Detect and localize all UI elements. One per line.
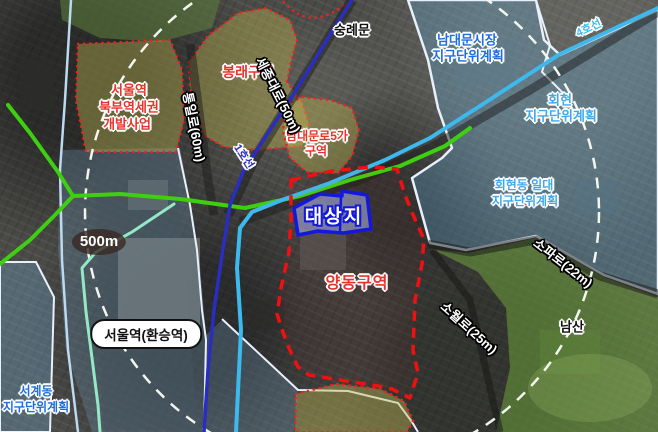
map-canvas: 서울역 북부역세권 개발사업 봉래구역 남대문로5가 구역 양동구역 대상지 남…	[0, 0, 658, 432]
zone-label-hoehyeon-2: 지구단위계획	[525, 110, 597, 123]
park-area-top	[60, 0, 220, 42]
zone-label-seogyedong-2: 지구단위계획	[3, 401, 69, 413]
zone-label-hoehyeon-ildae-2: 지구단위계획	[492, 195, 558, 207]
sungnyemun-dotted-arc	[284, 2, 344, 18]
namsan-lawn	[528, 354, 652, 422]
zone-label-seoul-station-dev-2: 북부역세권	[99, 101, 159, 114]
zone-label-seogyedong-1: 서계동	[19, 385, 52, 397]
station-corridor-tint	[58, 148, 298, 432]
zone-label-namdaemun-market-2: 지구단위계획	[432, 50, 504, 63]
zone-label-namdaemunro5ga-2: 구역	[305, 145, 327, 157]
place-label-namsan: 남산	[560, 321, 584, 334]
scale-label: 500m	[80, 233, 118, 250]
zone-label-namdaemun-market-1: 남대문시장	[437, 34, 497, 47]
zone-label-yangdong: 양동구역	[326, 276, 389, 292]
zone-label-hoehyeon-ildae-1: 회현동 일대	[495, 179, 554, 191]
place-label-sungnyemun: 숭례문	[334, 24, 370, 37]
zone-label-seoul-station-dev-1: 서울역	[111, 84, 147, 97]
seoul-station-badge: 서울역(환승역)	[90, 319, 202, 349]
zone-label-seoul-station-dev-3: 개발사업	[103, 118, 151, 131]
site-label: 대상지	[305, 208, 363, 227]
zone-label-hoehyeon-1: 회현	[548, 94, 572, 107]
scale-pill: 500m	[72, 229, 126, 255]
